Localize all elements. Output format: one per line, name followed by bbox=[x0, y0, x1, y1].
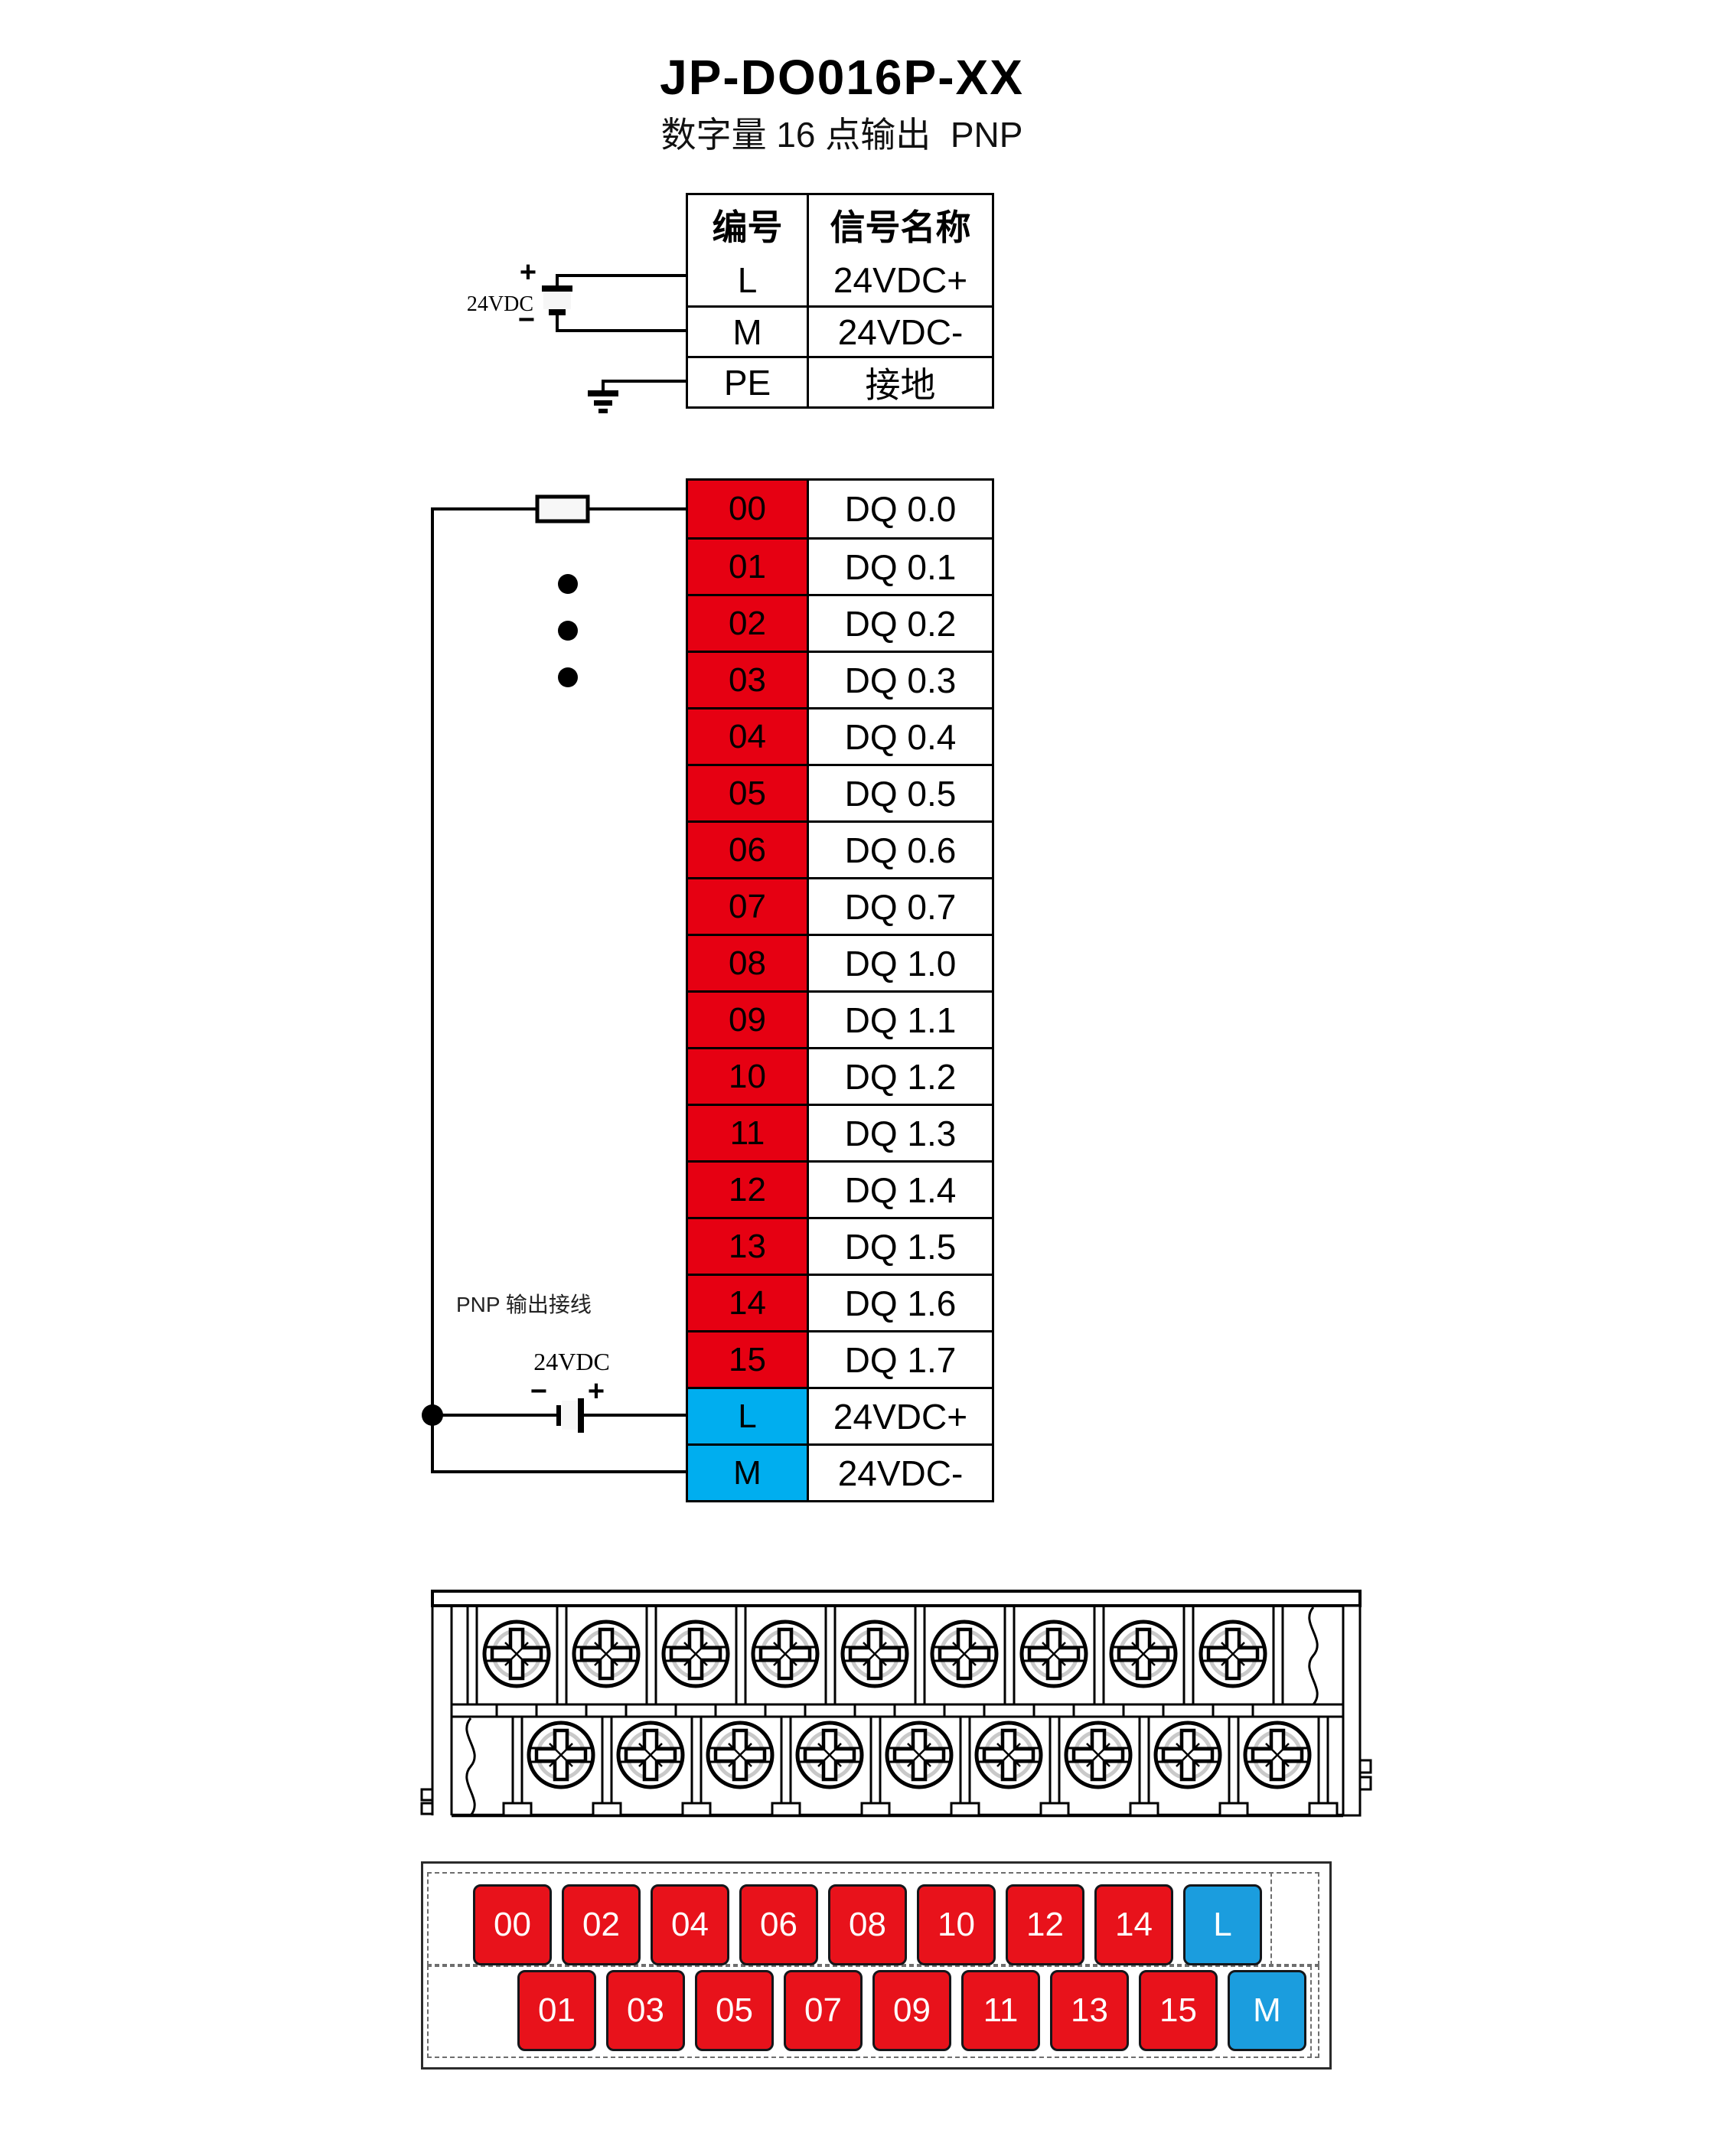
channel-signal: DQ 0.1 bbox=[807, 540, 992, 594]
channel-row: 14 DQ 1.6 bbox=[688, 1274, 992, 1330]
channel-row: 10 DQ 1.2 bbox=[688, 1047, 992, 1104]
terminal-row-upper: 00 02 04 06 08 10 12 14 L bbox=[473, 1884, 1262, 1965]
terminal-block-drawing bbox=[422, 1591, 1371, 1815]
channel-number: 14 bbox=[688, 1276, 807, 1330]
terminal-id: PE bbox=[688, 358, 807, 406]
terminal-block-cell: 15 bbox=[1139, 1970, 1218, 2051]
channel-row: 05 DQ 0.5 bbox=[688, 764, 992, 820]
channel-row: 03 DQ 0.3 bbox=[688, 651, 992, 707]
terminal-row-lower: 01 03 05 07 09 11 13 15 M bbox=[517, 1970, 1306, 2051]
channel-number: 04 bbox=[688, 709, 807, 764]
channel-number: 12 bbox=[688, 1163, 807, 1217]
channel-number: 08 bbox=[688, 936, 807, 990]
top-power-label: 24VDC bbox=[467, 292, 533, 316]
channel-row: L 24VDC+ bbox=[688, 1387, 992, 1443]
channel-signal: DQ 1.0 bbox=[807, 936, 992, 990]
terminal-block-cell: 04 bbox=[651, 1884, 729, 1965]
load-return-wire bbox=[432, 509, 686, 1472]
channel-number: 11 bbox=[688, 1106, 807, 1160]
channel-number: 06 bbox=[688, 823, 807, 877]
channel-row: 04 DQ 0.4 bbox=[688, 707, 992, 764]
battery-icon bbox=[542, 285, 572, 315]
channel-number: 05 bbox=[688, 766, 807, 820]
channel-row: 15 DQ 1.7 bbox=[688, 1330, 992, 1387]
wire-to-PE bbox=[603, 381, 686, 390]
signal-name: 接地 bbox=[807, 358, 992, 406]
channel-number: 03 bbox=[688, 653, 807, 707]
terminal-id: M bbox=[688, 308, 807, 356]
channel-signal: 24VDC- bbox=[807, 1446, 992, 1500]
minus-sign-bottom: − bbox=[530, 1375, 547, 1407]
terminal-block-cell: 00 bbox=[473, 1884, 552, 1965]
channel-signal: DQ 0.5 bbox=[807, 766, 992, 820]
channel-signal: DQ 0.6 bbox=[807, 823, 992, 877]
terminal-block-cell: M bbox=[1228, 1970, 1306, 2051]
channel-row: 00 DQ 0.0 bbox=[688, 481, 992, 537]
channel-number: 01 bbox=[688, 540, 807, 594]
channel-row: 07 DQ 0.7 bbox=[688, 877, 992, 934]
channel-number: 13 bbox=[688, 1219, 807, 1274]
battery-icon-bottom bbox=[556, 1398, 584, 1433]
channel-signal: DQ 0.0 bbox=[807, 481, 992, 537]
info-table: 编号 信号名称 L 24VDC+ M 24VDC- PE 接地 bbox=[686, 193, 994, 409]
channel-row: 11 DQ 1.3 bbox=[688, 1104, 992, 1160]
channel-row: M 24VDC- bbox=[688, 1443, 992, 1500]
channel-signal: DQ 1.1 bbox=[807, 993, 992, 1047]
channel-signal: DQ 1.3 bbox=[807, 1106, 992, 1160]
signal-name: 24VDC- bbox=[807, 308, 992, 356]
channel-number: 15 bbox=[688, 1332, 807, 1387]
channel-signal: DQ 1.5 bbox=[807, 1219, 992, 1274]
terminal-id: L bbox=[688, 255, 807, 305]
channel-signal: DQ 1.6 bbox=[807, 1276, 992, 1330]
info-table-row: PE 接地 bbox=[688, 356, 992, 406]
channel-number: M bbox=[688, 1446, 807, 1500]
terminal-block-cell: L bbox=[1183, 1884, 1262, 1965]
channel-number: 10 bbox=[688, 1049, 807, 1104]
header-signal-name: 信号名称 bbox=[807, 195, 992, 255]
pnp-output-wiring: − + 24VDC PNP 输出接线 bbox=[422, 497, 686, 1472]
terminal-block-cell: 06 bbox=[739, 1884, 818, 1965]
channel-number: 07 bbox=[688, 879, 807, 934]
terminal-block-cell: 02 bbox=[562, 1884, 641, 1965]
terminal-block-cell: 12 bbox=[1006, 1884, 1084, 1965]
channel-row: 01 DQ 0.1 bbox=[688, 537, 992, 594]
lower-spare-divider bbox=[1310, 1965, 1312, 2058]
terminal-block-cell: 10 bbox=[917, 1884, 996, 1965]
header-number: 编号 bbox=[688, 195, 807, 255]
ground-icon bbox=[588, 390, 618, 413]
terminal-block-cell: 08 bbox=[828, 1884, 907, 1965]
channel-signal: 24VDC+ bbox=[807, 1389, 992, 1443]
channel-number: 00 bbox=[688, 481, 807, 537]
plus-sign: + bbox=[520, 256, 536, 289]
channel-row: 13 DQ 1.5 bbox=[688, 1217, 992, 1274]
wire-to-L bbox=[557, 276, 686, 285]
top-power-wiring: + − 24VDC bbox=[467, 256, 686, 413]
upper-spare-divider bbox=[1270, 1872, 1272, 1965]
junction-dot bbox=[422, 1404, 443, 1426]
signal-name: 24VDC+ bbox=[807, 255, 992, 305]
channel-signal: DQ 1.7 bbox=[807, 1332, 992, 1387]
bottom-power-label: 24VDC bbox=[533, 1348, 610, 1375]
channel-signal: DQ 0.2 bbox=[807, 596, 992, 651]
datasheet-page: JP-DO016P-XX 数字量 16 点输出 PNP + − 24VDC bbox=[0, 0, 1735, 2156]
load-resistor-icon bbox=[537, 497, 588, 521]
channel-signal: DQ 0.3 bbox=[807, 653, 992, 707]
channel-row: 08 DQ 1.0 bbox=[688, 934, 992, 990]
terminal-block-cell: 03 bbox=[606, 1970, 685, 2051]
terminal-block-cell: 13 bbox=[1050, 1970, 1129, 2051]
pnp-note: PNP 输出接线 bbox=[456, 1293, 592, 1316]
channel-signal: DQ 0.4 bbox=[807, 709, 992, 764]
channel-number: 02 bbox=[688, 596, 807, 651]
channel-row: 12 DQ 1.4 bbox=[688, 1160, 992, 1217]
channel-row: 06 DQ 0.6 bbox=[688, 820, 992, 877]
info-table-row: M 24VDC- bbox=[688, 305, 992, 356]
info-table-row: L 24VDC+ bbox=[688, 255, 992, 305]
channel-number: 09 bbox=[688, 993, 807, 1047]
terminal-block-cell: 01 bbox=[517, 1970, 596, 2051]
channel-row: 09 DQ 1.1 bbox=[688, 990, 992, 1047]
plus-sign-bottom: + bbox=[588, 1375, 605, 1407]
terminal-block-cell: 11 bbox=[961, 1970, 1040, 2051]
channel-number: L bbox=[688, 1389, 807, 1443]
terminal-block-cell: 14 bbox=[1094, 1884, 1173, 1965]
channel-signal: DQ 1.2 bbox=[807, 1049, 992, 1104]
channel-row: 02 DQ 0.2 bbox=[688, 594, 992, 651]
channel-signal: DQ 1.4 bbox=[807, 1163, 992, 1217]
terminal-block-cell: 09 bbox=[872, 1970, 951, 2051]
terminal-block-cell: 05 bbox=[695, 1970, 774, 2051]
terminal-block-cell: 07 bbox=[784, 1970, 863, 2051]
ellipsis-dots bbox=[558, 574, 578, 687]
wire-to-M bbox=[557, 315, 686, 331]
channel-signal: DQ 0.7 bbox=[807, 879, 992, 934]
info-table-header: 编号 信号名称 bbox=[688, 195, 992, 255]
channel-table: 00 DQ 0.0 01 DQ 0.1 02 DQ 0.2 03 DQ 0.3 … bbox=[686, 478, 994, 1502]
